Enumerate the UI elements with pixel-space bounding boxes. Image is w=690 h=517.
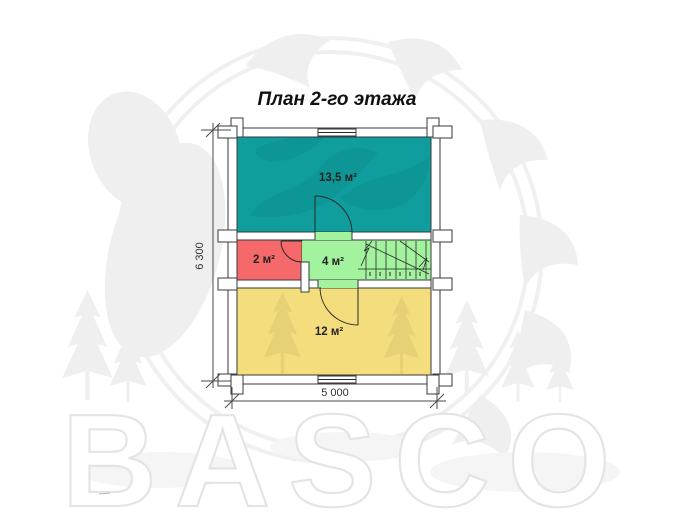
wall-mid-upper-left — [237, 232, 315, 240]
wall-stub — [301, 262, 309, 292]
log-tab — [218, 230, 237, 242]
watermark-flame — [520, 215, 578, 288]
watermark-tree — [62, 290, 113, 400]
log-tab — [433, 278, 452, 290]
page-title: План 2-го этажа — [258, 89, 417, 110]
log-tab — [433, 126, 452, 138]
doorway-gap-left — [302, 241, 309, 262]
wall-mid-upper-right — [352, 232, 431, 240]
log-tab — [433, 230, 452, 242]
log-tab — [218, 126, 237, 138]
brand-watermark-text: BASCO — [62, 387, 629, 517]
dim-label-height: 6 300 — [194, 242, 206, 270]
floor-plan-page: План 2-го этажа — [0, 0, 690, 517]
log-tab — [218, 278, 237, 290]
floor-plan-canvas: План 2-го этажа — [0, 0, 690, 517]
doorway-gap-bottom — [318, 280, 358, 288]
watermark-flame — [245, 34, 330, 88]
room-hall-area-label: 4 м² — [322, 256, 344, 268]
wall-mid-lower-right — [358, 280, 431, 288]
doorway-gap-top — [315, 232, 352, 240]
room-bottom-area-label: 12 м² — [315, 326, 343, 338]
room-left-area-label: 2 м² — [253, 254, 275, 266]
room-top-area-label: 13,5 м² — [319, 172, 357, 184]
